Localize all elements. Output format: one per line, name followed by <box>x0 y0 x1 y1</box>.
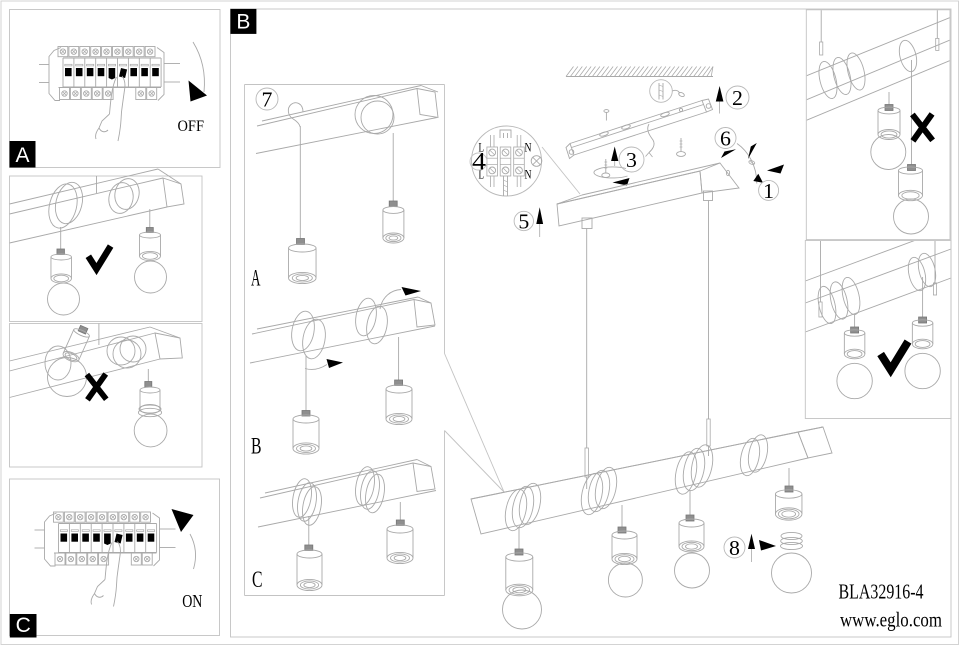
svg-text:1: 1 <box>763 179 774 203</box>
svg-text:8: 8 <box>729 536 740 560</box>
svg-text:N: N <box>525 141 532 155</box>
svg-text:7: 7 <box>262 88 273 112</box>
svg-text:OFF: OFF <box>178 118 205 135</box>
svg-text:5: 5 <box>518 210 529 234</box>
svg-text:A: A <box>251 266 261 291</box>
svg-text:6: 6 <box>720 127 731 151</box>
svg-text:2: 2 <box>732 86 743 110</box>
svg-text:C: C <box>252 567 263 592</box>
svg-text:3: 3 <box>626 148 637 172</box>
svg-text:4: 4 <box>472 149 487 176</box>
svg-text:C: C <box>16 614 31 637</box>
svg-text:www.eglo.com: www.eglo.com <box>840 608 942 632</box>
svg-text:N: N <box>525 168 532 182</box>
svg-text:BLA32916-4: BLA32916-4 <box>839 580 924 604</box>
svg-text:B: B <box>236 10 250 33</box>
svg-text:B: B <box>251 434 262 459</box>
svg-text:A: A <box>15 144 29 167</box>
svg-text:ON: ON <box>182 591 202 611</box>
